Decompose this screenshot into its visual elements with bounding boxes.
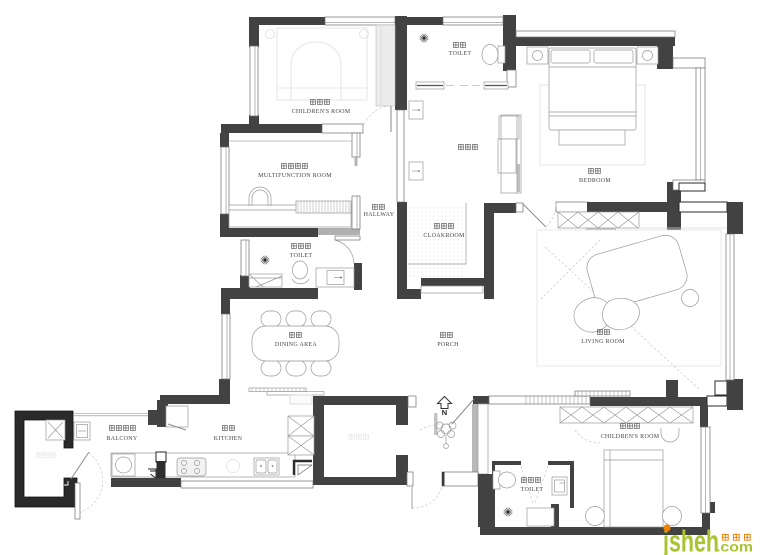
svg-text:CHILDREN'S ROOM: CHILDREN'S ROOM <box>601 434 660 440</box>
svg-text:HALLWAY: HALLWAY <box>364 212 395 218</box>
svg-text:N: N <box>442 408 447 417</box>
svg-text:MULTIFUNCTION ROOM: MULTIFUNCTION ROOM <box>258 173 332 179</box>
svg-text:TOILET: TOILET <box>449 51 472 57</box>
svg-text:jsheh: jsheh <box>662 524 719 555</box>
svg-text:PORCH: PORCH <box>437 342 459 348</box>
svg-text:CHILDREN'S ROOM: CHILDREN'S ROOM <box>292 109 351 115</box>
svg-text:.com: .com <box>716 540 753 555</box>
svg-text:KITCHEN: KITCHEN <box>214 436 243 442</box>
svg-text:BEDROOM: BEDROOM <box>579 178 611 184</box>
svg-text:DINING AREA: DINING AREA <box>275 342 317 348</box>
svg-text:TOILET: TOILET <box>521 487 544 493</box>
svg-text:TOILET: TOILET <box>290 253 313 259</box>
svg-text:BALCONY: BALCONY <box>106 436 137 442</box>
svg-text:LIVING ROOM: LIVING ROOM <box>581 339 625 345</box>
svg-text:CLOAKROOM: CLOAKROOM <box>423 233 465 239</box>
